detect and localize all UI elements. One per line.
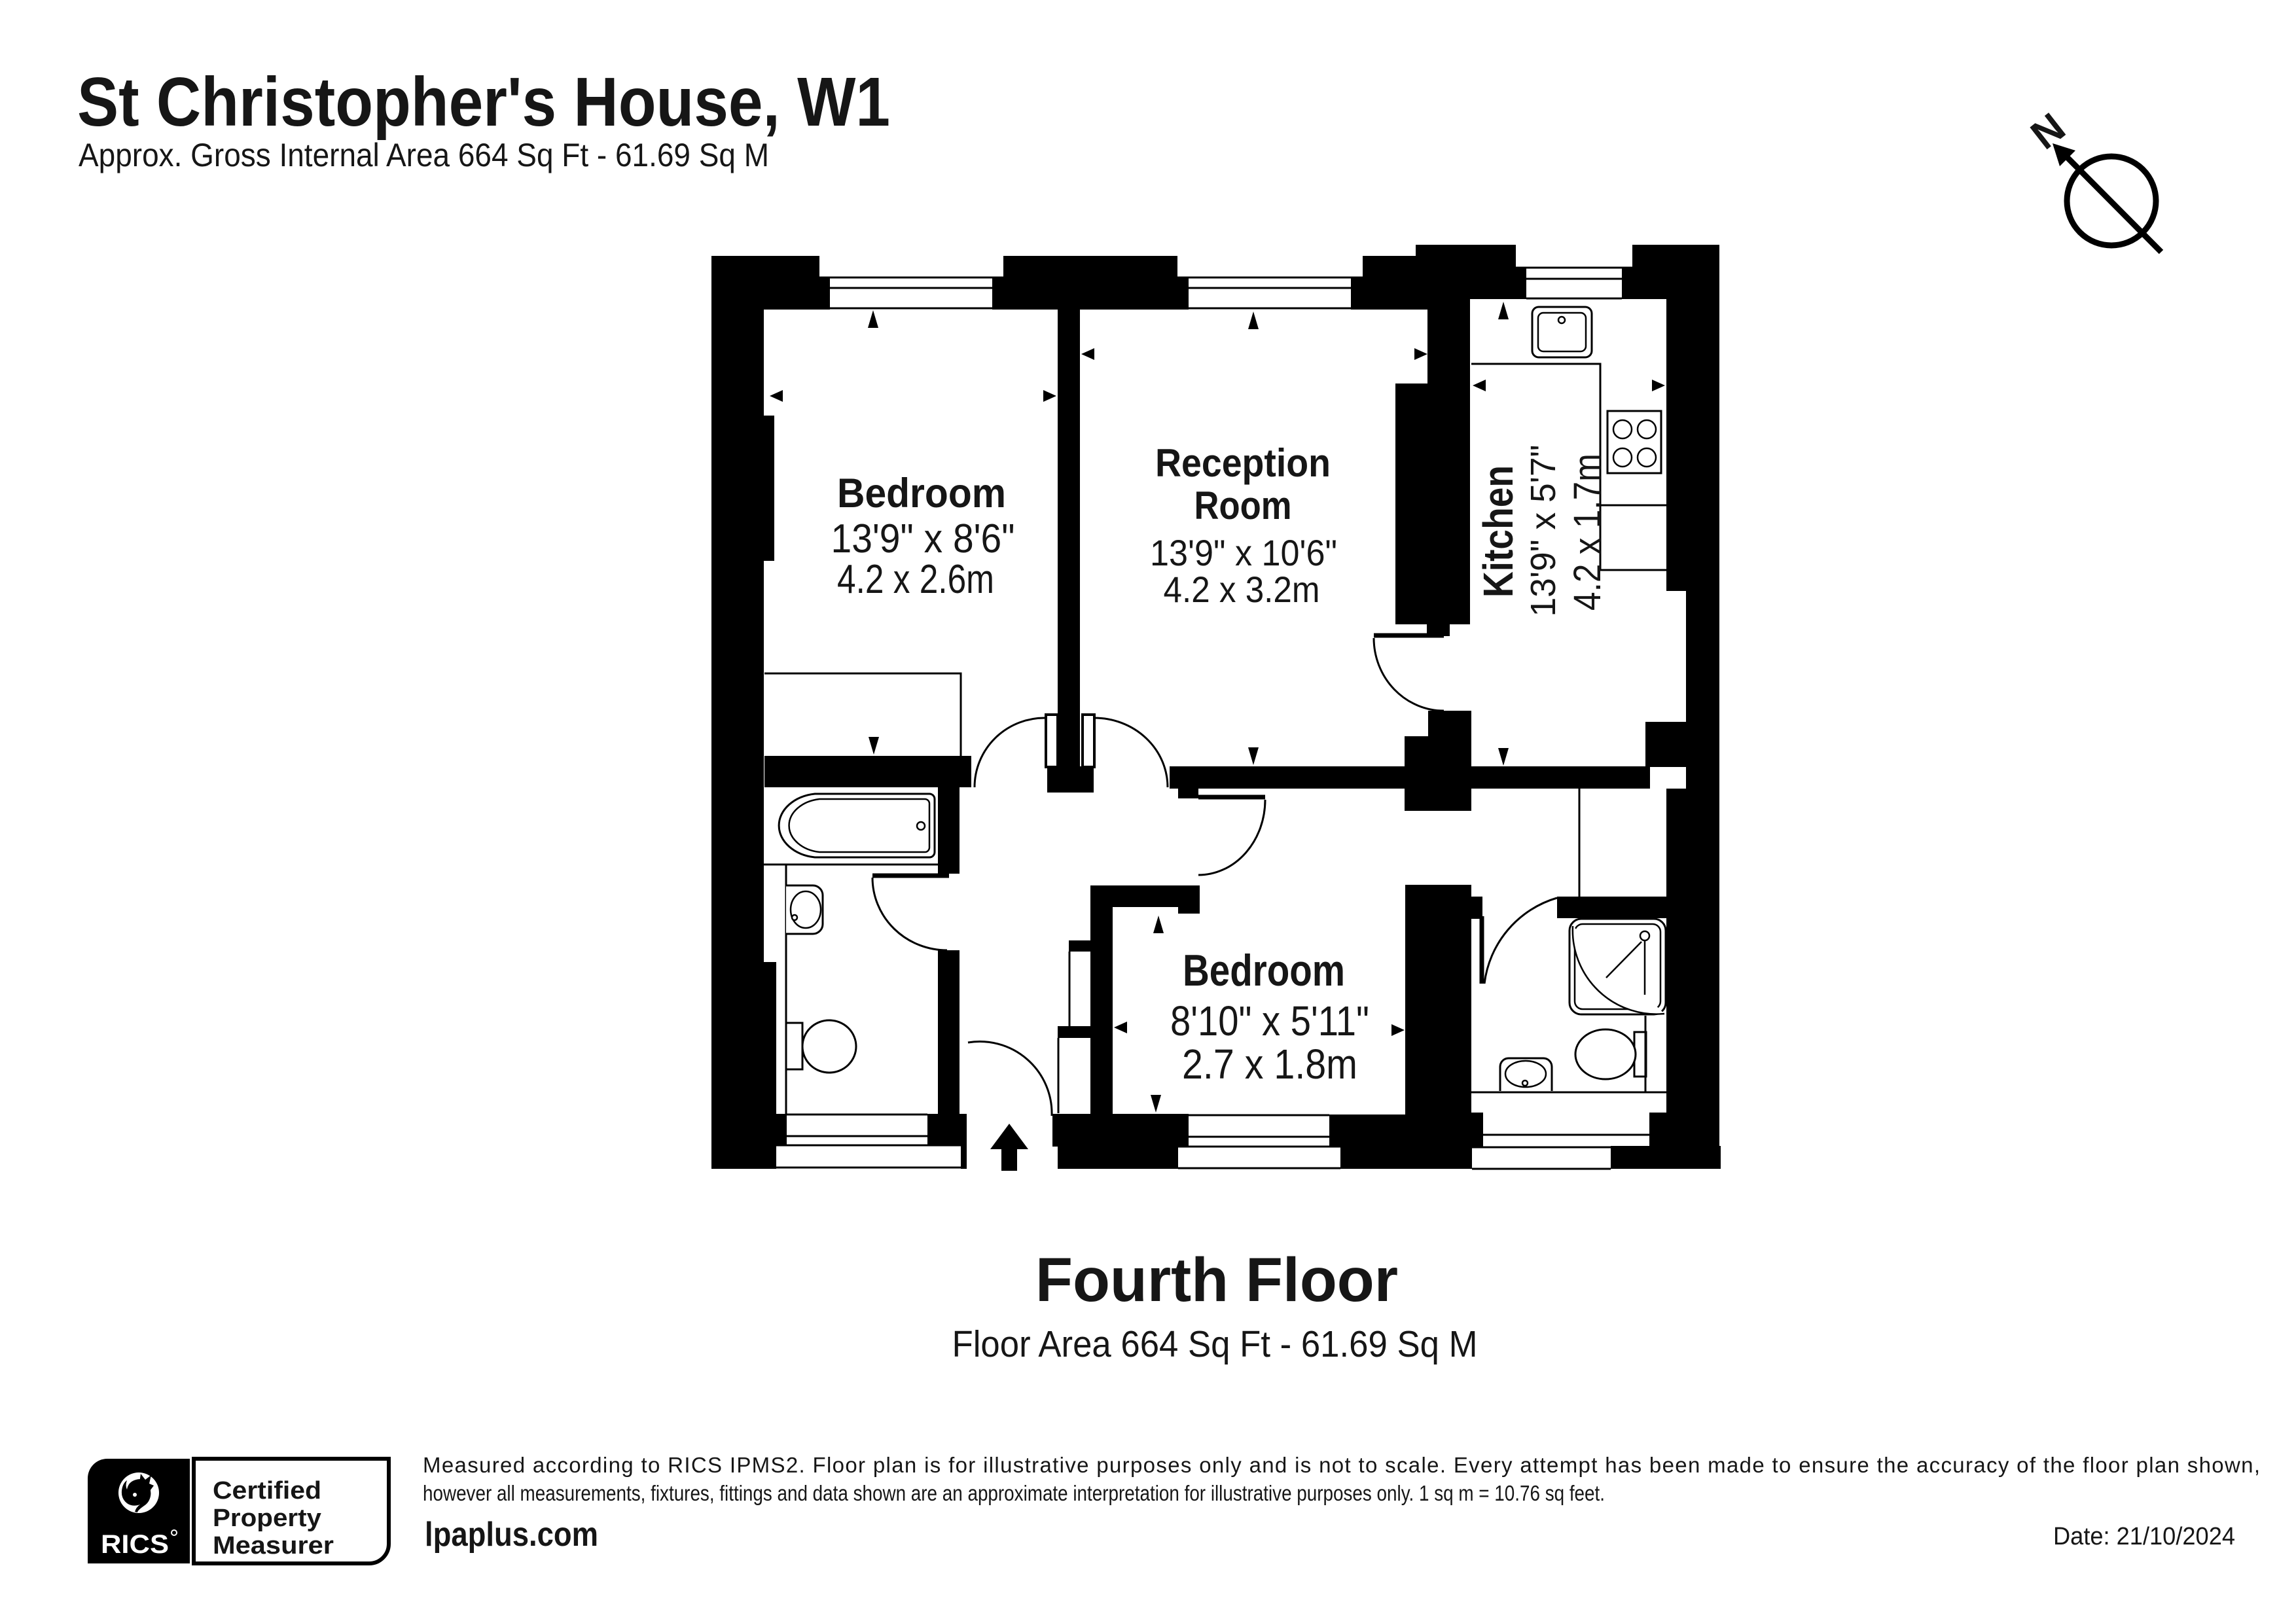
svg-text:Certified: Certified — [213, 1477, 321, 1505]
svg-text:4.2 x 1.7m: 4.2 x 1.7m — [1566, 454, 1609, 611]
svg-text:Measurer: Measurer — [213, 1532, 334, 1560]
svg-text:13'9" x 10'6": 13'9" x 10'6" — [1150, 532, 1337, 573]
svg-text:Kitchen: Kitchen — [1475, 465, 1522, 597]
svg-text:Approx. Gross Internal Area 66: Approx. Gross Internal Area 664 Sq Ft - … — [79, 137, 769, 173]
svg-text:Date: 21/10/2024: Date: 21/10/2024 — [2053, 1523, 2235, 1550]
svg-text:Bedroom: Bedroom — [1183, 946, 1345, 995]
svg-text:Property: Property — [213, 1505, 321, 1532]
svg-text:4.2 x 3.2m: 4.2 x 3.2m — [1164, 569, 1320, 610]
svg-text:Reception: Reception — [1155, 441, 1331, 485]
svg-text:Bedroom: Bedroom — [837, 471, 1006, 516]
svg-text:Measured according to RICS IPM: Measured according to RICS IPMS2. Floor … — [423, 1453, 2260, 1477]
svg-text:Fourth Floor: Fourth Floor — [1035, 1245, 1398, 1315]
svg-text:lpaplus.com: lpaplus.com — [425, 1516, 598, 1554]
svg-text:8'10" x 5'11": 8'10" x 5'11" — [1170, 997, 1369, 1044]
svg-text:13'9" x 8'6": 13'9" x 8'6" — [831, 516, 1015, 562]
svg-text:RICS: RICS — [101, 1530, 169, 1559]
svg-text:4.2 x 2.6m: 4.2 x 2.6m — [837, 557, 994, 602]
svg-text:13'9" x 5'7": 13'9" x 5'7" — [1524, 445, 1563, 617]
svg-text:2.7 x 1.8m: 2.7 x 1.8m — [1182, 1041, 1357, 1088]
svg-text:Floor Area 664 Sq Ft - 61.69 S: Floor Area 664 Sq Ft - 61.69 Sq M — [952, 1323, 1478, 1365]
svg-text:however all measurements, fixt: however all measurements, fixtures, fitt… — [423, 1481, 1605, 1505]
svg-text:Room: Room — [1194, 484, 1292, 527]
svg-text:St Christopher's House, W1: St Christopher's House, W1 — [77, 63, 890, 141]
